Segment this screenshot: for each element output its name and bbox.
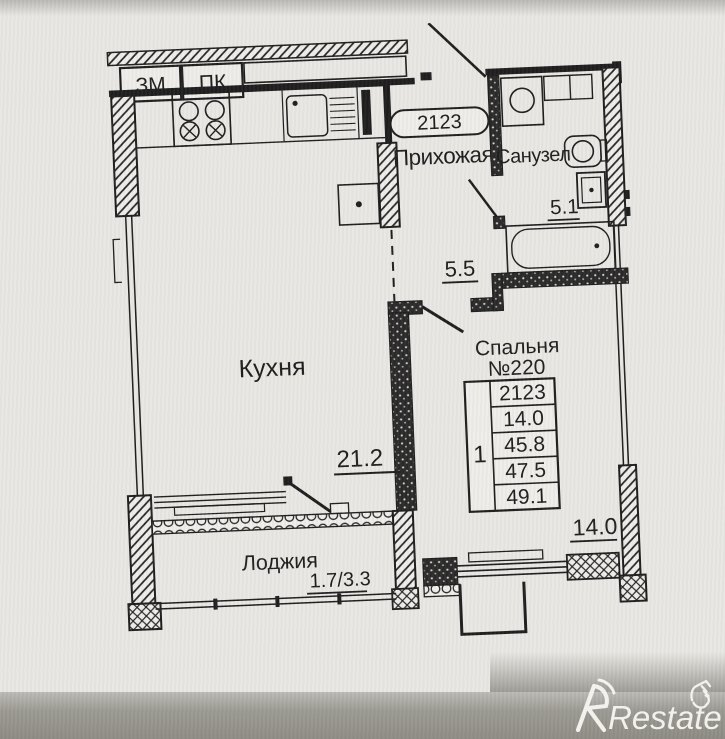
entrance-door-leaf xyxy=(428,21,485,79)
table-row-total-area: 49.1 xyxy=(506,485,548,510)
balcony-door-leaf xyxy=(287,480,330,514)
bedroom-number: №220 xyxy=(487,356,545,381)
bathroom-door-leaf xyxy=(469,179,497,218)
bedroom-bottom-block xyxy=(423,557,458,585)
photo-top-shade xyxy=(0,0,725,16)
glazing-mullion xyxy=(275,596,279,607)
floor-plan-svg: ЗМ ПК xyxy=(55,14,682,689)
washing-machine-icon xyxy=(501,76,544,126)
restate-watermark: Restate xyxy=(566,674,724,736)
room-hallway: 2123 Прихожая 5.5 xyxy=(390,106,504,334)
bathroom-area-underline xyxy=(548,219,580,220)
left-wall-bracket xyxy=(113,239,122,282)
left-window-outer xyxy=(126,216,138,496)
room-bedroom: Спальня №220 1 2123 14.0 45.8 47.5 49.1 … xyxy=(414,332,622,636)
bathtub-icon xyxy=(506,222,616,273)
loggia-window-line xyxy=(154,497,286,503)
apartment-info-table: 1 2123 14.0 45.8 47.5 49.1 xyxy=(464,378,559,512)
hallway-label: Прихожая xyxy=(392,142,493,171)
apartment-number-tag: 2123 xyxy=(417,111,462,135)
loggia-window-line xyxy=(154,492,286,498)
glazing-mullion xyxy=(213,599,217,610)
table-row-area-2: 45.8 xyxy=(504,433,546,458)
table-rooms-count: 1 xyxy=(473,441,487,469)
corridor-wall xyxy=(244,56,407,83)
counter-divider xyxy=(282,90,284,142)
loggia-area: 1.7/3.3 xyxy=(309,568,371,593)
loggia-label: Лоджия xyxy=(241,548,318,575)
outer-walls xyxy=(105,15,647,630)
kitchen-sink-icon xyxy=(286,93,356,137)
kitchen-label: Кухня xyxy=(238,353,306,384)
bathroom-top-wall xyxy=(485,63,619,75)
bathroom-left-wall-stub xyxy=(493,216,504,228)
room-kitchen: Кухня 21.2 xyxy=(134,84,431,521)
hallway-area: 5.5 xyxy=(444,255,476,281)
vent-nub-2 xyxy=(625,207,630,216)
tall-cabinet xyxy=(361,90,372,135)
floor-plan: ЗМ ПК xyxy=(55,14,682,689)
bedroom-bottom-xhatch xyxy=(567,553,620,580)
kitchen-area: 21.2 xyxy=(336,444,384,473)
dashed-partition xyxy=(391,230,394,313)
vent-nub-1 xyxy=(624,190,629,199)
kitchen-bedroom-wall xyxy=(388,312,416,511)
wall-stub xyxy=(383,85,392,143)
balcony-door-jamb xyxy=(330,503,348,514)
right-bottom-corner xyxy=(620,575,647,602)
bedroom-bottom-insulation xyxy=(424,584,460,596)
left-wall-pier-bottom xyxy=(128,495,156,606)
appliance-dot xyxy=(356,201,362,207)
left-bottom-corner xyxy=(128,603,161,630)
bedroom-area: 14.0 xyxy=(572,513,618,541)
table-row-living-area: 14.0 xyxy=(503,407,545,432)
entrance-jamb xyxy=(420,72,431,80)
bedroom-window-line xyxy=(458,572,568,577)
table-row-area-3: 47.5 xyxy=(505,459,547,484)
restate-wordmark: Restate xyxy=(608,699,722,736)
right-wall-pier-bottom xyxy=(619,465,641,580)
bedroom-window-sill xyxy=(469,550,543,562)
balcony-duct-outline xyxy=(460,582,526,635)
table-row-number: 2123 xyxy=(499,381,547,406)
loggia-window-sill xyxy=(174,503,264,515)
bathroom-area: 5.1 xyxy=(550,195,579,219)
bathroom-label: Санузел xyxy=(496,143,571,168)
wall-connector xyxy=(492,273,504,310)
counter-divider xyxy=(357,87,359,139)
toilet-icon xyxy=(577,172,606,208)
left-window-inner xyxy=(132,216,144,496)
right-window-inner xyxy=(618,225,628,465)
glazing-mullion xyxy=(337,593,341,604)
bedroom-door-leaf xyxy=(422,305,463,334)
bathroom-bedroom-wall xyxy=(502,268,629,288)
bathroom-cabinet xyxy=(544,74,593,100)
bedroom-window-line xyxy=(457,567,567,572)
room-loggia: Лоджия 1.7/3.3 xyxy=(150,471,419,619)
